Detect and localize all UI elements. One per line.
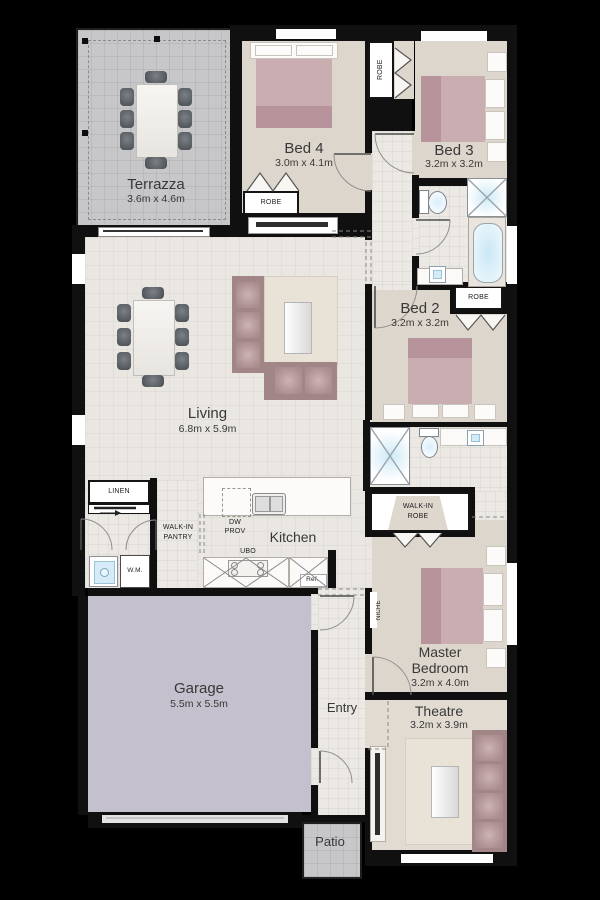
bathroom-basin <box>429 266 446 283</box>
garage-door-recess <box>102 815 288 823</box>
wall <box>412 186 419 218</box>
chair <box>175 352 189 370</box>
bed4-label: Bed 4 <box>262 140 346 157</box>
kitchen-sink-bowl <box>255 496 270 512</box>
sofa-cushion <box>475 735 503 761</box>
wall <box>230 25 242 237</box>
wall <box>365 284 372 420</box>
sofa-cushion <box>475 793 503 819</box>
window <box>276 29 336 39</box>
chair <box>145 157 167 169</box>
bed2-mattress-head <box>408 338 472 358</box>
floor-plan: ROBE ROBE ROBE WALK-IN ROBE LINEN WALK-I… <box>0 0 600 900</box>
kitchen-sink-bowl <box>270 496 283 512</box>
cooktop-burner <box>231 562 238 569</box>
sofa-cushion <box>236 342 260 368</box>
master-mattress <box>441 568 483 644</box>
master-side-table <box>486 648 506 668</box>
sofa-cushion <box>475 822 503 848</box>
niche-shelf-bar <box>256 222 328 227</box>
ensuite-hall-patch <box>475 491 507 520</box>
master-label-2: Bedroom <box>396 660 484 676</box>
chair <box>175 304 189 322</box>
ensuite-toilet-bowl <box>421 436 438 458</box>
wall <box>328 550 336 588</box>
chair <box>145 71 167 83</box>
pantry-label-2: PANTRY <box>155 534 201 541</box>
terrazza-post <box>82 38 88 44</box>
wall <box>311 785 318 815</box>
master-dims: 3.2m x 4.0m <box>396 677 484 689</box>
wall <box>311 630 318 748</box>
chair <box>175 328 189 346</box>
ref-label: Ref. <box>300 576 325 583</box>
window <box>507 563 517 645</box>
dishwasher-provision <box>222 488 251 517</box>
bed2-side-table <box>474 404 496 420</box>
living-coffee-table <box>284 302 312 354</box>
bed4-dims: 3.0m x 4.1m <box>259 157 349 169</box>
patio-label: Patio <box>302 834 358 849</box>
linen-label: LINEN <box>88 488 150 495</box>
sofa-cushion <box>236 282 260 308</box>
pillow <box>485 79 505 108</box>
bed4-mattress-foot <box>256 106 332 128</box>
chair <box>117 352 131 370</box>
wall <box>88 588 311 596</box>
sofa-cushion <box>475 764 503 790</box>
chair <box>178 132 192 150</box>
sofa-cushion <box>275 367 302 394</box>
robe-bed4-label: ROBE <box>243 199 299 206</box>
chair <box>120 132 134 150</box>
terrazza-dims: 3.6m x 4.6m <box>86 193 226 205</box>
robe-bed3-label: ROBE <box>372 48 390 92</box>
chair <box>120 88 134 106</box>
ensuite-basin <box>467 430 484 446</box>
wall <box>365 692 372 700</box>
theatre-label: Theatre <box>394 703 484 719</box>
bathroom-door-opening <box>412 218 419 256</box>
garage-dims: 5.5m x 5.5m <box>129 698 269 710</box>
master-mattress-foot <box>421 568 441 644</box>
bed3-label: Bed 3 <box>412 142 496 159</box>
terrazza-post <box>82 130 88 136</box>
wall <box>300 815 365 822</box>
wall <box>368 99 412 131</box>
bed2-mattress <box>408 358 472 404</box>
chair <box>142 287 164 299</box>
cooktop-burner <box>257 562 264 569</box>
rear-hall-floor <box>88 514 150 554</box>
bathtub-inner <box>473 223 503 283</box>
garage-door-opening <box>311 594 318 630</box>
entry-label: Entry <box>316 700 368 715</box>
terrazza-table <box>136 84 178 158</box>
living-dims: 6.8m x 5.9m <box>150 423 265 435</box>
ubo-label: UBO <box>230 548 266 555</box>
bed2-label: Bed 2 <box>378 300 462 317</box>
living-table <box>133 300 175 376</box>
pillow <box>412 404 439 418</box>
wall <box>78 596 88 815</box>
window <box>507 226 517 284</box>
bed3-dims: 3.2m x 3.2m <box>409 158 499 170</box>
kitchen-label: Kitchen <box>238 529 348 545</box>
bed2-dims: 3.2m x 3.2m <box>375 317 465 329</box>
living-hall-opening <box>365 240 372 284</box>
terrazza-post <box>154 36 160 42</box>
toilet-bowl <box>428 191 447 214</box>
stacker-door <box>98 227 210 237</box>
bed3-mattress-foot <box>421 76 441 142</box>
pillow <box>255 45 292 56</box>
walk-in-robe-label-2: ROBE <box>388 513 448 520</box>
patio-floor <box>302 822 362 879</box>
chair <box>117 328 131 346</box>
wall <box>311 588 318 594</box>
bed2-side-table <box>383 404 405 420</box>
pillow <box>485 111 505 140</box>
window <box>72 254 85 284</box>
master-side-table <box>486 546 506 566</box>
bed4-mattress <box>256 59 332 106</box>
laundry-tub-drain <box>100 568 109 577</box>
chair <box>178 88 192 106</box>
pantry-label-1: WALK-IN <box>155 524 201 531</box>
theatre-dims: 3.2m x 3.9m <box>392 719 486 731</box>
pillow <box>442 404 469 418</box>
sofa-cushion <box>305 367 332 394</box>
bed3-mattress <box>441 76 485 142</box>
wall <box>365 190 372 240</box>
garage-label: Garage <box>129 680 269 697</box>
pillow <box>296 45 333 56</box>
pillow <box>483 573 503 606</box>
wall <box>363 420 370 491</box>
washing-machine-label: W.M. <box>120 567 150 574</box>
hall-corridor-floor <box>372 131 412 284</box>
pillow <box>483 609 503 642</box>
cooktop-burner <box>231 569 238 576</box>
ensuite-shower <box>370 427 410 485</box>
window <box>421 31 487 41</box>
sofa-cushion <box>236 312 260 338</box>
shower <box>467 178 507 217</box>
window <box>72 415 85 445</box>
chair <box>120 110 134 128</box>
living-label: Living <box>150 405 265 422</box>
window <box>401 854 493 863</box>
chair <box>178 110 192 128</box>
walk-in-robe-label-1: WALK-IN <box>388 503 448 510</box>
bed4-door-opening <box>365 153 372 190</box>
theatre-tv <box>375 753 380 835</box>
terrazza-label: Terrazza <box>86 176 226 193</box>
dw-prov-label-1: DW <box>210 519 260 526</box>
wall <box>507 25 517 866</box>
chair <box>142 375 164 387</box>
chair <box>117 304 131 322</box>
master-label-1: Master <box>396 644 484 660</box>
bed3-side-table <box>487 52 507 72</box>
front-door-opening <box>311 748 318 785</box>
theatre-coffee-table <box>431 766 459 818</box>
cooktop-burner <box>257 569 264 576</box>
bed3-hall-connector-floor <box>394 41 414 99</box>
linen-slider-track <box>88 504 150 514</box>
master-niche-label: NICHE <box>374 594 384 626</box>
wall <box>372 692 507 700</box>
